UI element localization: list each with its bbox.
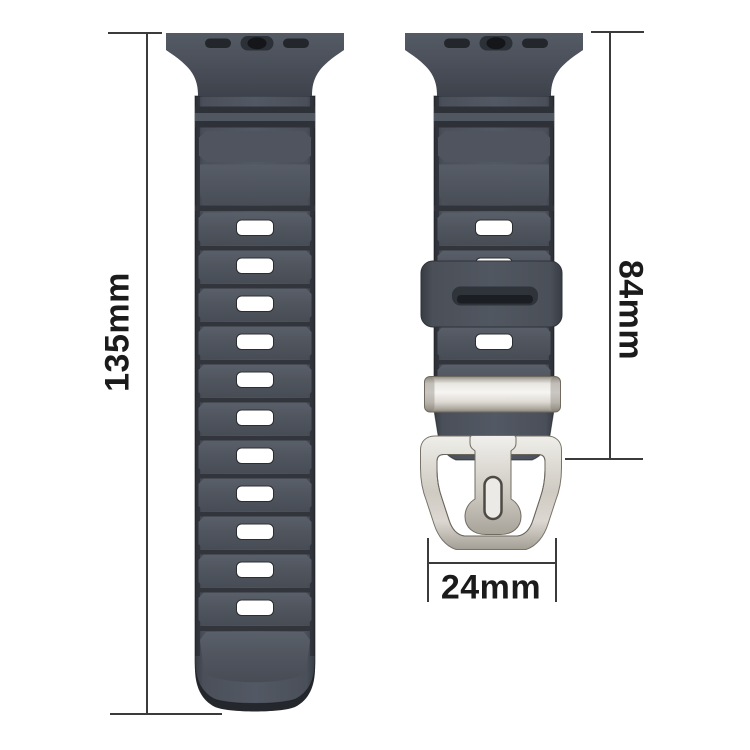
long-strap — [166, 33, 344, 712]
dim-line-long-strap-vertical — [146, 33, 148, 715]
dim-tick-short-strap-top — [591, 31, 644, 33]
keeper-loop — [421, 261, 562, 327]
dim-tick-short-strap-bottom — [565, 458, 643, 460]
dim-label-long-strap-length: 135mm — [99, 272, 138, 392]
lug-slot-left — [444, 39, 470, 49]
lug-slot-right — [283, 39, 309, 49]
dim-label-buckle-width: 24mm — [441, 569, 541, 608]
metal-loop — [425, 377, 561, 413]
tang-slot — [485, 477, 502, 519]
lug-slot-right — [522, 39, 548, 49]
short-strap — [405, 33, 583, 550]
dim-tick-long-strap-top — [108, 32, 162, 34]
dim-tick-buckle-right — [555, 538, 557, 602]
dim-label-short-strap-length: 84mm — [611, 260, 650, 360]
dim-tick-buckle-left — [427, 538, 429, 602]
dim-line-short-strap-vertical — [609, 31, 611, 459]
product-dimension-diagram: 135mm 84mm 24mm — [0, 0, 750, 750]
dim-line-buckle-horizontal — [427, 562, 557, 564]
lug-slot-left — [205, 39, 231, 49]
dim-tick-long-strap-bottom — [110, 713, 222, 715]
